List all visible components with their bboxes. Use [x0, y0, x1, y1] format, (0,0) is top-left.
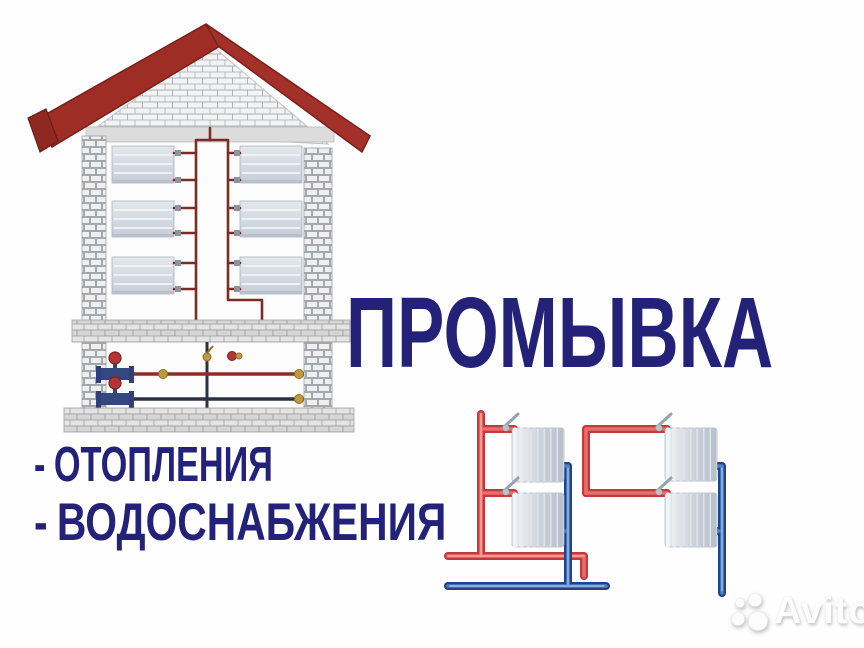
service-item-water-supply: -ВОДОСНАБЖЕНИЯ: [34, 496, 446, 549]
radiator-panel: [240, 257, 302, 294]
basement-floor-slab: [64, 408, 354, 432]
radiator-panel: [240, 146, 302, 183]
service-label: ОТОПЛЕНИЯ: [54, 438, 273, 492]
service-item-heating: -ОТОПЛЕНИЯ: [34, 441, 273, 490]
radiator-sectional: [665, 428, 717, 481]
radiator-sectional: [665, 493, 717, 547]
service-label: ВОДОСНАБЖЕНИЯ: [57, 493, 446, 552]
radiator-sectional: [512, 493, 564, 547]
radiator-panel: [112, 146, 174, 183]
bullet-dash: -: [34, 438, 45, 492]
radiator-system-illustration: [430, 398, 770, 598]
avito-watermark: Avito: [724, 586, 864, 646]
right-brick-pillar: [304, 148, 332, 412]
headline-promyvka: ПРОМЫВКА: [346, 283, 773, 383]
house-heating-illustration: [0, 0, 400, 450]
avito-wordmark: Avito: [774, 590, 864, 633]
sectional-radiators: [512, 428, 717, 547]
ad-image: ПРОМЫВКА -ОТОПЛЕНИЯ -ВОДОСНАБЖЕНИЯ: [0, 0, 864, 648]
radiator-panel: [112, 201, 174, 237]
avito-logo-icon: [726, 590, 772, 638]
bullet-dash: -: [34, 493, 48, 552]
radiator-panel: [112, 257, 174, 294]
radiator-sectional: [512, 428, 564, 482]
radiator-panel: [240, 201, 302, 237]
mid-floor-slab: [72, 320, 350, 342]
